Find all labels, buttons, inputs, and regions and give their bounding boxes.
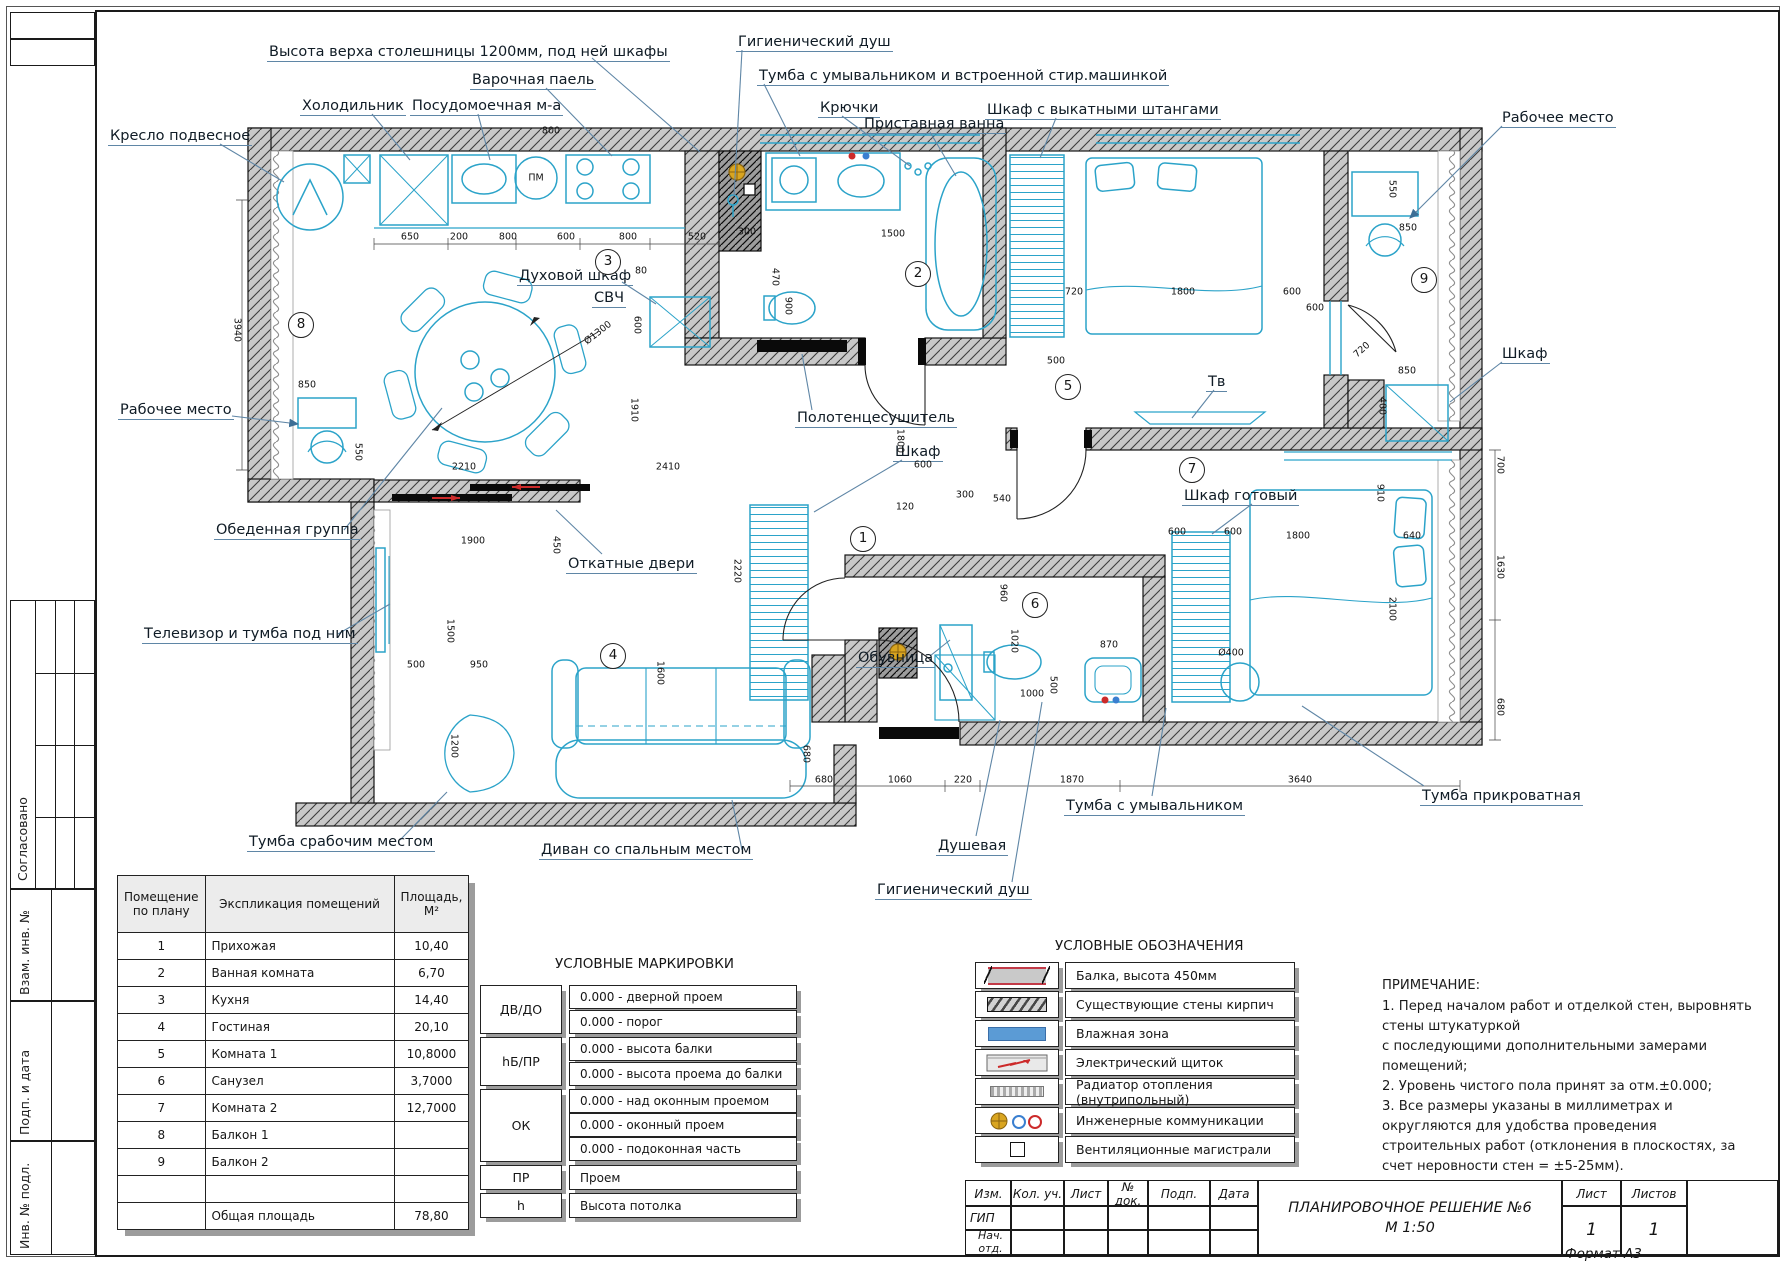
note-line: стены штукатуркой	[1382, 1019, 1520, 1034]
tb-sheet-label: Лист	[1561, 1180, 1622, 1207]
vent-duct-icon	[975, 1136, 1059, 1163]
room-number-badge: 3	[595, 249, 621, 275]
symbol-label: Существующие стены кирпич	[1065, 991, 1295, 1018]
dimension-label: 960	[998, 584, 1009, 602]
tb-empty	[1107, 1205, 1149, 1231]
dimension-label: 1870	[1060, 775, 1084, 786]
dimension-label: 1060	[888, 775, 912, 786]
callout-label: Шкаф с выкатными штангами	[985, 102, 1221, 120]
table-row: 1Прихожая10,40	[118, 933, 469, 960]
table-cell: Комната 1	[205, 1041, 394, 1068]
note-line: строительных работ (отклонения в плоскос…	[1382, 1139, 1735, 1154]
table-cell: 4	[118, 1014, 206, 1041]
table-row: 5Комната 110,8000	[118, 1041, 469, 1068]
dimension-label: 1900	[461, 536, 485, 547]
marking-line: 0.000 - над оконным проемом	[569, 1089, 797, 1113]
tb-empty	[1010, 1205, 1065, 1231]
room-number-badge: 8	[288, 312, 314, 338]
dimension-label: 1630	[1495, 555, 1506, 579]
table-cell: Балкон 1	[205, 1122, 394, 1149]
dimension-label: 800	[499, 232, 517, 243]
col-room-name: Экспликация помещений	[205, 876, 394, 933]
dimension-label: 600	[557, 232, 575, 243]
dimension-label: 200	[450, 232, 468, 243]
tb-empty	[1147, 1205, 1211, 1231]
dimension-label: 850	[1399, 223, 1417, 234]
dimension-label: 910	[1375, 484, 1386, 502]
note-line: счет неровности стен = ±5-25мм).	[1382, 1159, 1624, 1174]
markings-title: УСЛОВНЫЕ МАРКИРОВКИ	[555, 956, 734, 972]
room-number-badge: 1	[850, 526, 876, 552]
dimension-label: 500	[1047, 356, 1065, 367]
utilities-icon	[975, 1107, 1059, 1134]
table-row: 8Балкон 1	[118, 1122, 469, 1149]
tb-gip: ГИП	[965, 1205, 1012, 1231]
callout-label: СВЧ	[592, 290, 626, 308]
tb-empty	[1010, 1229, 1065, 1255]
dimension-label: 3640	[1288, 775, 1312, 786]
callout-label: Тумба с умывальником и встроенной стир.м…	[757, 68, 1169, 86]
table-cell: 3,7000	[394, 1068, 469, 1095]
tb-empty	[1063, 1205, 1109, 1231]
tb-list: Лист	[1063, 1180, 1109, 1207]
dimension-label: 1500	[881, 229, 905, 240]
col-room-area: Площадь, М²	[394, 876, 469, 933]
room-explication-table: Помещение по плану Экспликация помещений…	[117, 875, 469, 1230]
table-cell: 7	[118, 1095, 206, 1122]
table-cell: 8	[118, 1122, 206, 1149]
dimension-label: 700	[1495, 456, 1506, 474]
table-cell: 10,40	[394, 933, 469, 960]
dimension-label: 520	[688, 232, 706, 243]
dimension-label: 300	[738, 227, 756, 238]
table-cell: Общая площадь	[205, 1203, 394, 1230]
marking-line: 0.000 - порог	[569, 1010, 797, 1034]
callout-label: Тумба прикроватная	[1420, 788, 1583, 806]
table-cell: 14,40	[394, 987, 469, 1014]
callout-label: Рабочее место	[118, 402, 234, 420]
dimension-label: 500	[1048, 676, 1059, 694]
dimension-label: 80	[635, 266, 647, 277]
marking-key: ПР	[480, 1165, 562, 1190]
table-cell	[394, 1122, 469, 1149]
callout-label: Полотенцесушитель	[795, 410, 957, 428]
callout-label: Тумба срабочим местом	[247, 834, 435, 852]
drawing-title: ПЛАНИРОВОЧНОЕ РЕШЕНИЕ №6	[1288, 1198, 1531, 1218]
callout-label: Обувница	[856, 650, 935, 668]
callout-label: Холодильник	[300, 98, 406, 116]
brick-wall-icon	[975, 991, 1059, 1018]
dimension-label: 680	[815, 775, 833, 786]
table-cell	[394, 1176, 469, 1203]
table-row: 4Гостиная20,10	[118, 1014, 469, 1041]
marking-line: Проем	[569, 1165, 797, 1190]
tb-empty	[1107, 1229, 1149, 1255]
marking-line: 0.000 - подоконная часть	[569, 1137, 797, 1161]
dimension-label: 600	[914, 460, 932, 471]
table-cell: 6	[118, 1068, 206, 1095]
dimension-label: 450	[551, 536, 562, 554]
table-cell: Кухня	[205, 987, 394, 1014]
callout-label: Обеденная группа	[214, 522, 361, 540]
dimension-label: 850	[1398, 366, 1416, 377]
callout-label: Высота верха столешницы 1200мм, под ней …	[267, 44, 670, 62]
dimension-label: 650	[401, 232, 419, 243]
symbol-label: Балка, высота 450мм	[1065, 962, 1295, 989]
dimension-label: 500	[407, 660, 425, 671]
room-number-badge: 9	[1411, 267, 1437, 293]
walls	[248, 128, 1482, 826]
format-label: Формат А3	[1565, 1246, 1642, 1262]
tb-izm: Изм.	[965, 1180, 1012, 1207]
dimension-label: 300	[956, 490, 974, 501]
table-cell: 5	[118, 1041, 206, 1068]
symbol-label: Инженерные коммуникации	[1065, 1107, 1295, 1134]
marking-line: Высота потолка	[569, 1193, 797, 1218]
dimension-label: 220	[954, 775, 972, 786]
dimension-label: 600	[1306, 303, 1324, 314]
drawing-sheet: Согласовано Взам. инв. № Подп. и дата Ин…	[0, 0, 1786, 1263]
dimension-label: 1910	[629, 398, 640, 422]
table-row: 6Санузел3,7000	[118, 1068, 469, 1095]
table-cell: Комната 2	[205, 1095, 394, 1122]
table-row: 9Балкон 2	[118, 1149, 469, 1176]
table-cell: 10,8000	[394, 1041, 469, 1068]
table-cell: 1	[118, 933, 206, 960]
marking-line: 0.000 - высота балки	[569, 1037, 797, 1061]
table-row	[118, 1176, 469, 1203]
table-row: 3Кухня14,40	[118, 987, 469, 1014]
symbol-label: Радиатор отопления (внутрипольный)	[1065, 1078, 1295, 1105]
callout-label: Шкаф	[1500, 346, 1550, 364]
table-cell: 2	[118, 960, 206, 987]
dimension-label: 1000	[1020, 689, 1044, 700]
tb-empty	[1686, 1180, 1778, 1255]
dimension-label: 540	[993, 494, 1011, 505]
callout-label: Гигиенический душ	[875, 882, 1032, 900]
dimension-label: 120	[896, 502, 914, 513]
callout-label: Тв	[1206, 374, 1227, 392]
dimension-label: 720	[1065, 287, 1083, 298]
dimension-label: ПМ	[528, 173, 543, 184]
table-row: Общая площадь78,80	[118, 1203, 469, 1230]
note-line: помещений;	[1382, 1059, 1468, 1074]
dimension-label: 680	[801, 745, 812, 763]
symbols-title: УСЛОВНЫЕ ОБОЗНАЧЕНИЯ	[1055, 938, 1244, 954]
table-cell: Ванная комната	[205, 960, 394, 987]
table-cell: Прихожая	[205, 933, 394, 960]
dimension-label: 640	[1403, 531, 1421, 542]
table-row: 7Комната 212,7000	[118, 1095, 469, 1122]
dimension-label: 1200	[449, 734, 460, 758]
dimension-label: 800	[619, 232, 637, 243]
room-number-badge: 4	[600, 643, 626, 669]
table-cell	[205, 1176, 394, 1203]
callout-label: Тумба с умывальником	[1064, 798, 1245, 816]
drawing-scale: М 1:50	[1385, 1218, 1435, 1238]
table-cell	[118, 1203, 206, 1230]
room-number-badge: 7	[1179, 457, 1205, 483]
dimension-label: 680	[1495, 698, 1506, 716]
note-line: 3. Все размеры указаны в миллиметрах и	[1382, 1099, 1673, 1114]
dimension-label: 870	[1100, 640, 1118, 651]
wet-zone-icon	[975, 1020, 1059, 1047]
table-cell: 9	[118, 1149, 206, 1176]
floor-radiator-icon	[975, 1078, 1059, 1105]
dimension-label: 400	[1377, 397, 1388, 415]
room-number-badge: 6	[1022, 592, 1048, 618]
table-row: 2Ванная комната6,70	[118, 960, 469, 987]
dimension-label: 800	[542, 126, 560, 137]
tb-podp: Подп.	[1147, 1180, 1211, 1207]
dimension-label: 1800	[895, 429, 906, 453]
dimension-label: 850	[298, 380, 316, 391]
table-cell: 78,80	[394, 1203, 469, 1230]
note-line: с последующими дополнительными замерами	[1382, 1039, 1707, 1054]
table-cell	[118, 1176, 206, 1203]
table-cell: Санузел	[205, 1068, 394, 1095]
col-room-number: Помещение по плану	[118, 876, 206, 933]
tb-sheets-label: Листов	[1620, 1180, 1688, 1207]
dimension-label: 550	[1387, 180, 1398, 198]
dimension-label: 1600	[655, 661, 666, 685]
tb-data: Дата	[1209, 1180, 1259, 1207]
dimension-label: Ø400	[1218, 648, 1244, 659]
tb-empty	[1209, 1205, 1259, 1231]
callout-label: Кресло подвесное	[108, 128, 252, 146]
marking-key: ОК	[480, 1089, 562, 1162]
symbol-label: Электрический щиток	[1065, 1049, 1295, 1076]
beam-icon	[975, 962, 1059, 989]
callout-label: Гигиенический душ	[736, 34, 893, 52]
notes-title: ПРИМЕЧАНИЕ:	[1382, 978, 1480, 993]
dimension-label: 600	[1168, 527, 1186, 538]
dimension-label: 1800	[1286, 531, 1310, 542]
dimension-label: 900	[783, 297, 794, 315]
table-cell	[394, 1149, 469, 1176]
symbol-label: Вентиляционные магистрали	[1065, 1136, 1295, 1163]
tb-empty	[1209, 1229, 1259, 1255]
room-number-badge: 5	[1055, 374, 1081, 400]
table-cell: Балкон 2	[205, 1149, 394, 1176]
table-cell: 6,70	[394, 960, 469, 987]
thresholds	[392, 338, 1092, 739]
dimension-label: 1800	[1171, 287, 1195, 298]
note-line: округляются для удобства проведения	[1382, 1119, 1657, 1134]
table-cell: Гостиная	[205, 1014, 394, 1041]
dimension-label: 470	[770, 268, 781, 286]
dimension-label: 2100	[1387, 597, 1398, 621]
symbol-label: Влажная зона	[1065, 1020, 1295, 1047]
table-cell: 3	[118, 987, 206, 1014]
marking-key: ДВ/ДО	[480, 985, 562, 1034]
marking-key: hБ/ПР	[480, 1037, 562, 1086]
tb-kol: Кол. уч.	[1010, 1180, 1065, 1207]
callout-label: Телевизор и тумба под ним	[142, 626, 358, 644]
marking-line: 0.000 - высота проема до балки	[569, 1062, 797, 1086]
dimension-label: 3940	[232, 318, 243, 342]
table-cell: 20,10	[394, 1014, 469, 1041]
marking-line: 0.000 - дверной проем	[569, 985, 797, 1009]
dimension-label: 600	[632, 316, 643, 334]
room-number-badge: 2	[905, 261, 931, 287]
callout-label: Душевая	[936, 838, 1008, 856]
tb-ndok: № док.	[1107, 1180, 1149, 1207]
dimension-label: 2410	[656, 462, 680, 473]
callout-label: Диван со спальным местом	[539, 842, 753, 860]
tb-nach: Нач. отд.	[965, 1229, 1012, 1255]
table-cell: 12,7000	[394, 1095, 469, 1122]
tb-empty	[1147, 1229, 1211, 1255]
callout-label: Шкаф готовый	[1182, 488, 1299, 506]
dimension-label: 600	[1283, 287, 1301, 298]
marking-key: h	[480, 1193, 562, 1218]
dimension-label: 950	[470, 660, 488, 671]
dimension-label: 2210	[452, 462, 476, 473]
dimension-label: 550	[353, 443, 364, 461]
callout-label: Откатные двери	[566, 556, 697, 574]
marking-line: 0.000 - оконный проем	[569, 1113, 797, 1137]
note-line: 2. Уровень чистого пола принят за отм.±0…	[1382, 1079, 1712, 1094]
callout-label: Варочная паель	[470, 72, 596, 90]
dimension-label: 1020	[1009, 629, 1020, 653]
note-line: 1. Перед началом работ и отделкой стен, …	[1382, 999, 1752, 1014]
callout-label: Рабочее место	[1500, 110, 1616, 128]
electric-panel-icon	[975, 1049, 1059, 1076]
callout-label: Посудомоечная м-а	[410, 98, 563, 116]
dimension-label: 1500	[445, 619, 456, 643]
tb-empty	[1063, 1229, 1109, 1255]
tb-drawing-title: ПЛАНИРОВОЧНОЕ РЕШЕНИЕ №6 М 1:50	[1257, 1180, 1563, 1255]
dimension-label: 600	[1224, 527, 1242, 538]
dimension-label: 2220	[732, 559, 743, 583]
